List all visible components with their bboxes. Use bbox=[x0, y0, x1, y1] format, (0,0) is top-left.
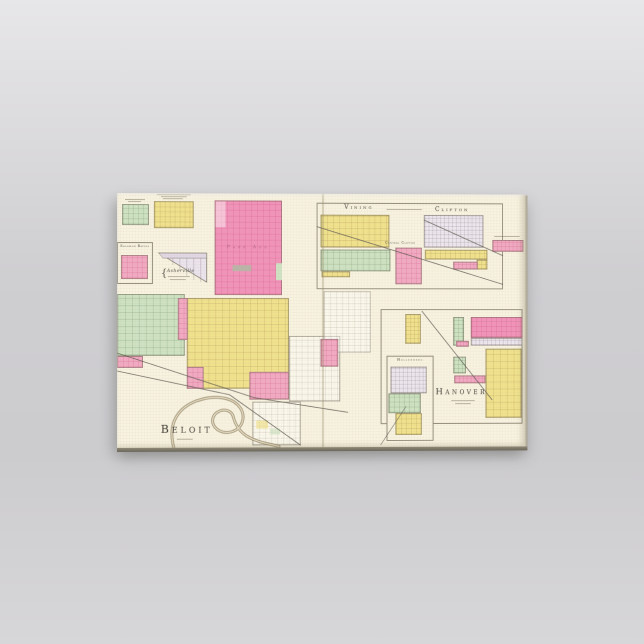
label-hanover: Hanover bbox=[436, 388, 487, 397]
asherville-note-smudge bbox=[170, 279, 186, 280]
label-hollenberg: Hollenberg bbox=[387, 359, 432, 363]
plat-title-smudge bbox=[157, 194, 191, 195]
label-solomon-rapids: Solomon Rapids bbox=[118, 245, 152, 248]
map-plate: Park Add Solomon Rapids { Asherville Be bbox=[117, 193, 524, 448]
plat-title-smudge bbox=[163, 198, 183, 199]
backdrop-wall: Park Add Solomon Rapids { Asherville Be bbox=[0, 0, 644, 644]
plate-fold-line bbox=[322, 194, 325, 447]
beloit-subtitle-smudge bbox=[177, 439, 193, 440]
plat-title-smudge bbox=[125, 199, 145, 200]
edge-plat-title-smudge bbox=[494, 236, 519, 237]
box-title-smudge bbox=[387, 209, 422, 210]
label-asherville: Asherville bbox=[167, 270, 195, 275]
label-beloit: Beloit bbox=[157, 424, 217, 435]
plat-title-smudge bbox=[161, 196, 187, 197]
label-park-add: Park Add bbox=[221, 246, 276, 251]
label-central-clifton: Central Clifton bbox=[379, 242, 422, 246]
label-clifton: Clifton bbox=[430, 207, 475, 213]
asherville-note-smudge bbox=[168, 276, 190, 277]
canvas-print-product[interactable]: Park Add Solomon Rapids { Asherville Be bbox=[117, 193, 524, 448]
label-vining: Vining bbox=[337, 205, 380, 211]
hanover-subtitle-smudge bbox=[455, 403, 471, 404]
hanover-subtitle-smudge bbox=[451, 400, 474, 401]
plat-title-smudge bbox=[128, 201, 141, 202]
canvas-right-edge bbox=[524, 196, 527, 448]
